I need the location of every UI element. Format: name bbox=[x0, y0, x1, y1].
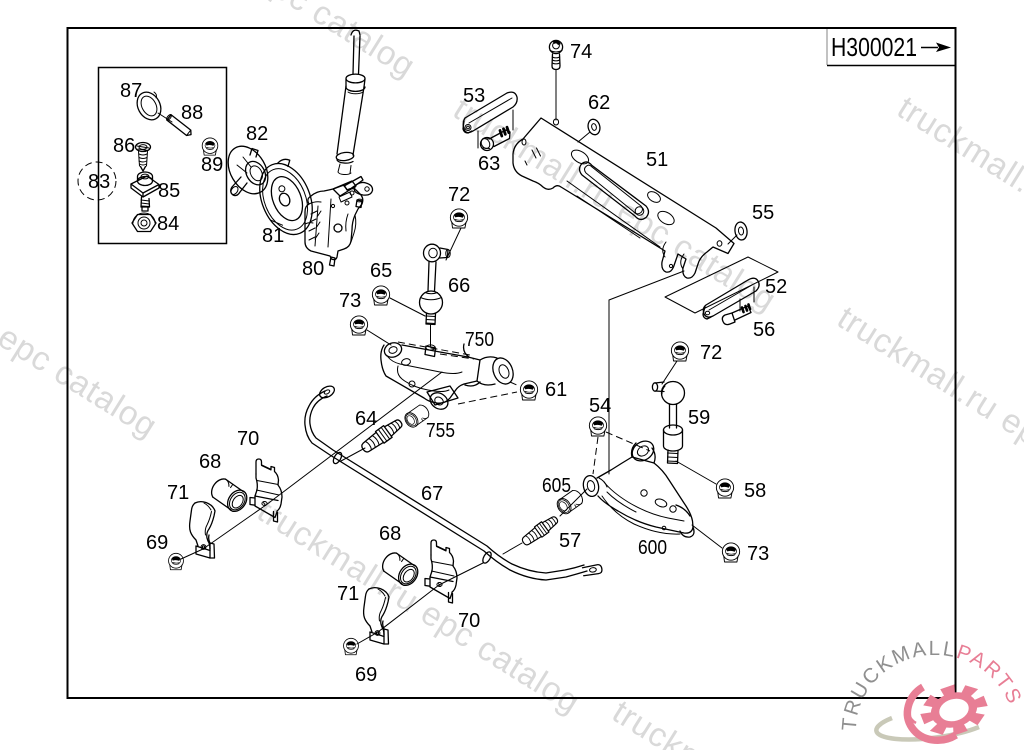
svg-text:70: 70 bbox=[237, 428, 259, 450]
svg-text:73: 73 bbox=[747, 543, 769, 565]
svg-text:86: 86 bbox=[113, 135, 135, 157]
svg-text:H300021: H300021 bbox=[831, 32, 917, 62]
svg-text:74: 74 bbox=[570, 41, 592, 63]
svg-text:62: 62 bbox=[588, 92, 610, 114]
svg-text:69: 69 bbox=[355, 664, 377, 686]
svg-text:85: 85 bbox=[158, 180, 180, 202]
svg-text:88: 88 bbox=[181, 102, 203, 124]
svg-text:52: 52 bbox=[765, 276, 787, 298]
svg-text:56: 56 bbox=[753, 319, 775, 341]
svg-text:61: 61 bbox=[545, 379, 567, 401]
svg-text:54: 54 bbox=[589, 395, 611, 417]
svg-text:71: 71 bbox=[167, 482, 189, 504]
svg-text:72: 72 bbox=[700, 342, 722, 364]
svg-text:66: 66 bbox=[448, 275, 470, 297]
svg-text:truckmall.ru epc catalog: truckmall.ru epc catalog bbox=[606, 693, 942, 750]
svg-text:84: 84 bbox=[157, 213, 179, 235]
svg-text:68: 68 bbox=[379, 523, 401, 545]
svg-text:71: 71 bbox=[337, 583, 359, 605]
svg-text:70: 70 bbox=[458, 610, 480, 632]
svg-text:67: 67 bbox=[421, 483, 443, 505]
svg-text:truckmall.ru epc catalog: truckmall.ru epc catalog bbox=[447, 90, 783, 319]
svg-text:truckmall.ru epc catalog: truckmall.ru epc catalog bbox=[251, 492, 587, 721]
svg-text:truckmall.ru epc catalog: truckmall.ru epc catalog bbox=[0, 216, 164, 445]
svg-text:83: 83 bbox=[88, 171, 110, 193]
svg-text:65: 65 bbox=[370, 260, 392, 282]
svg-text:81: 81 bbox=[262, 225, 284, 247]
svg-text:58: 58 bbox=[744, 480, 766, 502]
svg-text:59: 59 bbox=[688, 407, 710, 429]
svg-text:69: 69 bbox=[146, 532, 168, 554]
svg-text:truckmall.ru epc catalog: truckmall.ru epc catalog bbox=[891, 89, 1024, 318]
svg-text:68: 68 bbox=[199, 451, 221, 473]
svg-text:57: 57 bbox=[559, 530, 581, 552]
svg-text:64: 64 bbox=[355, 408, 377, 430]
svg-text:73: 73 bbox=[339, 290, 361, 312]
svg-text:87: 87 bbox=[120, 80, 142, 102]
svg-text:55: 55 bbox=[752, 202, 774, 224]
svg-text:truckmall.ru epc catalog: truckmall.ru epc catalog bbox=[86, 0, 422, 85]
svg-text:600: 600 bbox=[638, 537, 667, 559]
svg-text:truckmall.ru epc catalog: truckmall.ru epc catalog bbox=[831, 299, 1024, 528]
svg-text:755: 755 bbox=[426, 420, 455, 442]
svg-text:80: 80 bbox=[302, 258, 324, 280]
svg-text:82: 82 bbox=[246, 123, 268, 145]
svg-text:51: 51 bbox=[646, 149, 668, 171]
svg-text:750: 750 bbox=[465, 329, 494, 351]
svg-text:72: 72 bbox=[448, 184, 470, 206]
svg-text:63: 63 bbox=[478, 153, 500, 175]
svg-text:605: 605 bbox=[542, 475, 571, 497]
svg-text:89: 89 bbox=[201, 154, 223, 176]
svg-text:53: 53 bbox=[463, 85, 485, 107]
